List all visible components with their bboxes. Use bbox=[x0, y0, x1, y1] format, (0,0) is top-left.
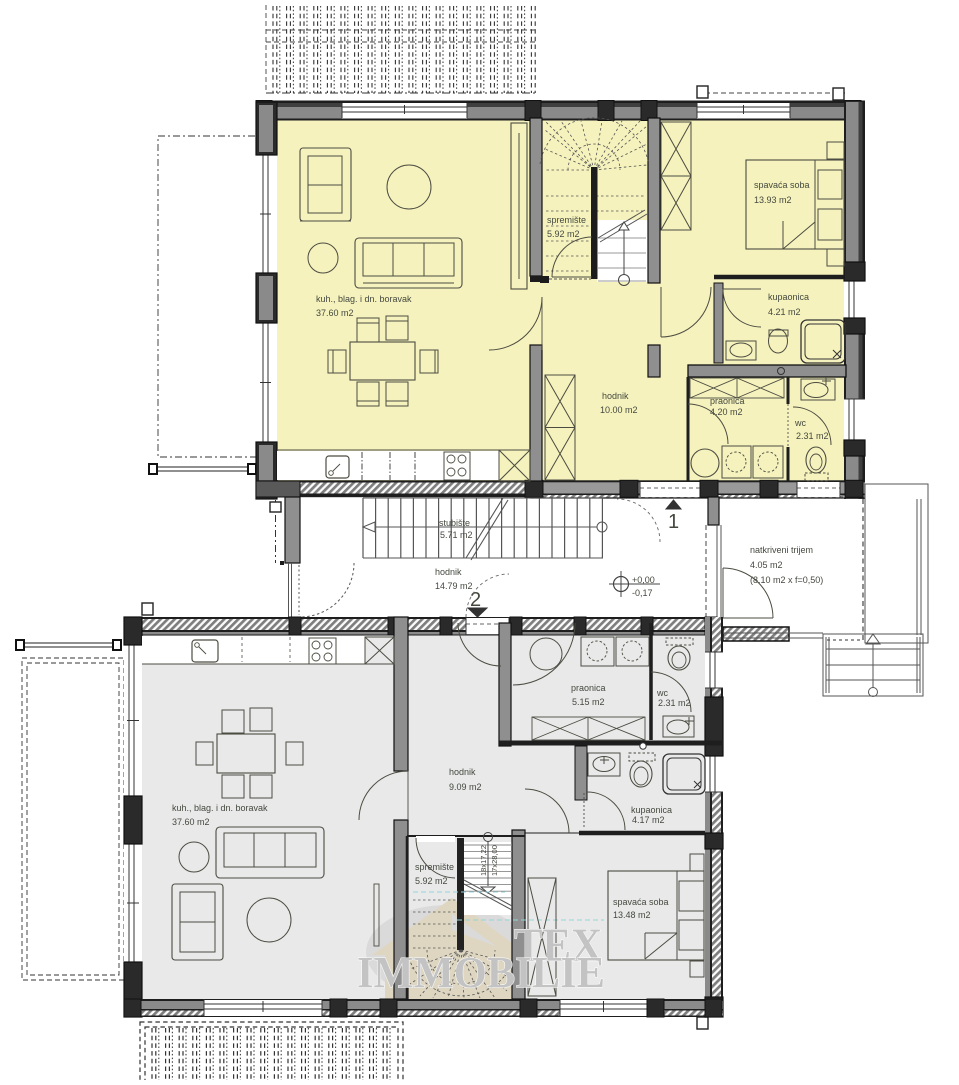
svg-text:10.00 m2: 10.00 m2 bbox=[600, 405, 638, 415]
svg-text:+0,00: +0,00 bbox=[632, 575, 655, 585]
svg-text:(8.10 m2 x f=0,50): (8.10 m2 x f=0,50) bbox=[750, 575, 823, 585]
svg-text:hodnik: hodnik bbox=[449, 767, 476, 777]
svg-text:4.17 m2: 4.17 m2 bbox=[632, 815, 665, 825]
svg-text:5.71 m2: 5.71 m2 bbox=[440, 530, 473, 540]
svg-text:4.21 m2: 4.21 m2 bbox=[768, 307, 801, 317]
svg-text:hodnik: hodnik bbox=[602, 391, 629, 401]
svg-text:spremište: spremište bbox=[547, 215, 586, 225]
svg-text:4.20 m2: 4.20 m2 bbox=[710, 407, 743, 417]
svg-text:praonica: praonica bbox=[710, 396, 745, 406]
svg-text:13.93 m2: 13.93 m2 bbox=[754, 195, 792, 205]
svg-text:2.31 m2: 2.31 m2 bbox=[658, 698, 691, 708]
svg-text:natkriveni trijem: natkriveni trijem bbox=[750, 545, 813, 555]
svg-text:37.60 m2: 37.60 m2 bbox=[172, 817, 210, 827]
svg-text:kuh., blag. i dn. boravak: kuh., blag. i dn. boravak bbox=[172, 803, 268, 813]
svg-text:IMMOBILIE: IMMOBILIE bbox=[357, 948, 605, 997]
svg-text:1: 1 bbox=[668, 511, 679, 533]
svg-text:17x28,00: 17x28,00 bbox=[490, 845, 499, 876]
svg-text:stubište: stubište bbox=[439, 518, 470, 528]
svg-text:praonica: praonica bbox=[571, 683, 606, 693]
svg-text:kupaonica: kupaonica bbox=[631, 805, 672, 815]
svg-text:spavaća soba: spavaća soba bbox=[613, 897, 669, 907]
svg-text:spavaća soba: spavaća soba bbox=[754, 180, 810, 190]
svg-text:18x17,22: 18x17,22 bbox=[479, 845, 488, 876]
svg-text:kuh., blag. i dn. boravak: kuh., blag. i dn. boravak bbox=[316, 294, 412, 304]
svg-text:wc: wc bbox=[794, 418, 806, 428]
svg-text:5.92 m2: 5.92 m2 bbox=[415, 876, 448, 886]
svg-text:9.09 m2: 9.09 m2 bbox=[449, 782, 482, 792]
svg-text:-0,17: -0,17 bbox=[632, 588, 653, 598]
svg-text:spremište: spremište bbox=[415, 862, 454, 872]
svg-text:13.48 m2: 13.48 m2 bbox=[613, 910, 651, 920]
svg-text:4.05 m2: 4.05 m2 bbox=[750, 560, 783, 570]
svg-text:14.79 m2: 14.79 m2 bbox=[435, 581, 473, 591]
svg-text:kupaonica: kupaonica bbox=[768, 292, 809, 302]
svg-text:5.15 m2: 5.15 m2 bbox=[572, 697, 605, 707]
svg-text:5.92 m2: 5.92 m2 bbox=[547, 229, 580, 239]
svg-text:2.31 m2: 2.31 m2 bbox=[796, 431, 829, 441]
svg-text:hodnik: hodnik bbox=[435, 567, 462, 577]
svg-text:wc: wc bbox=[656, 688, 668, 698]
svg-text:37.60 m2: 37.60 m2 bbox=[316, 308, 354, 318]
